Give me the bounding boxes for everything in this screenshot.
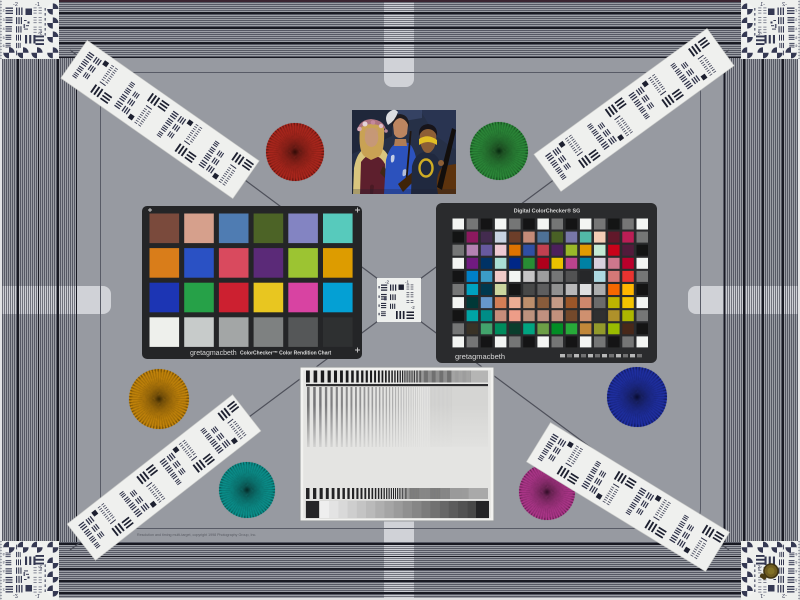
svg-text:gretagmacbeth: gretagmacbeth — [190, 350, 237, 357]
svg-text:Digital ColorChecker® SG: Digital ColorChecker® SG — [514, 208, 581, 215]
svg-text:Resolution and timing multi-ta: Resolution and timing multi-target, copy… — [137, 533, 256, 537]
svg-text:-2: -2 — [385, 280, 390, 285]
svg-text:-1: -1 — [405, 280, 410, 285]
svg-text:ColorChecker™ Color Rendition: ColorChecker™ Color Rendition Chart — [240, 351, 331, 357]
svg-text:gretagmacbeth: gretagmacbeth — [455, 352, 505, 361]
